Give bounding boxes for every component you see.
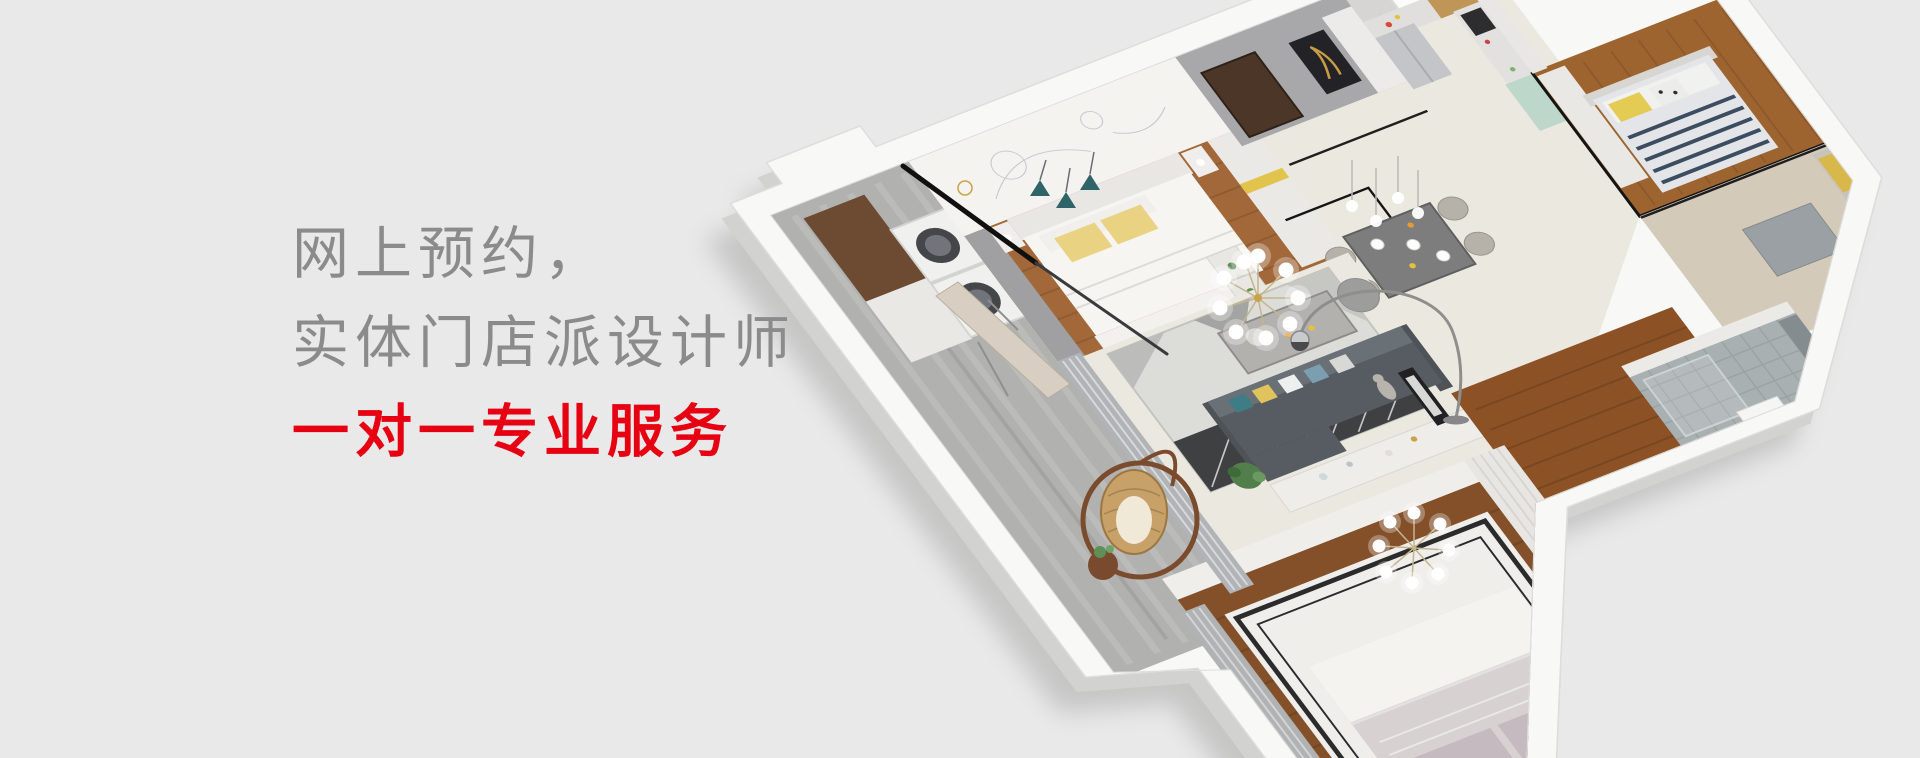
yellow-curtain bbox=[1884, 241, 1920, 280]
headline-line-2: 实体门店派设计师 bbox=[292, 299, 796, 388]
headline-line-1: 网上预约， bbox=[292, 210, 796, 299]
master-chandelier bbox=[1368, 502, 1460, 594]
hero-headline: 网上预约， 实体门店派设计师 一对一专业服务 bbox=[292, 210, 796, 477]
headline-line-3: 一对一专业服务 bbox=[292, 388, 796, 477]
hero-banner: Bird's-eye cutaway 3D render of a furnis… bbox=[0, 0, 1920, 758]
floor-lamp-gold bbox=[1566, 634, 1596, 664]
apartment-illustration: Bird's-eye cutaway 3D render of a furnis… bbox=[0, 0, 1920, 758]
